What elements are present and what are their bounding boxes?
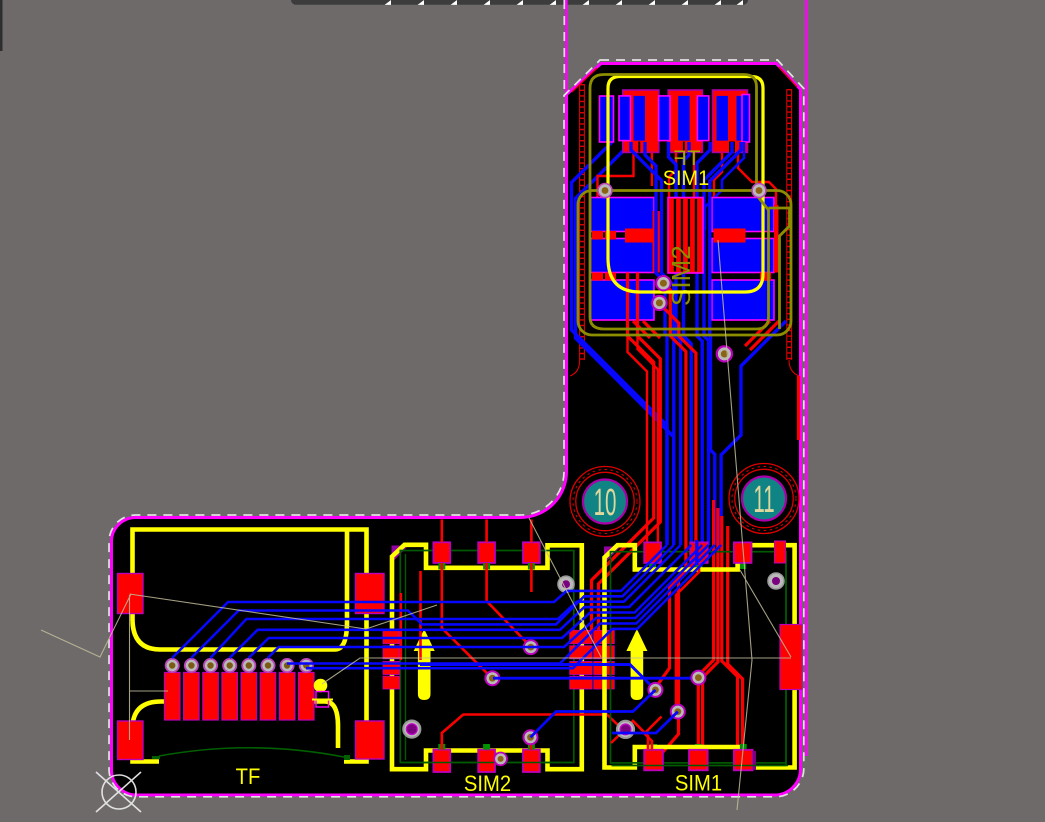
svg-text:SIM1: SIM1 <box>675 772 722 796</box>
svg-text:11: 11 <box>753 478 774 520</box>
svg-text:SIM2: SIM2 <box>666 245 696 306</box>
svg-text:10: 10 <box>594 481 617 523</box>
svg-text:SIM1: SIM1 <box>663 167 710 191</box>
svg-text:TF: TF <box>236 765 261 789</box>
svg-text:SIM2: SIM2 <box>464 772 511 796</box>
